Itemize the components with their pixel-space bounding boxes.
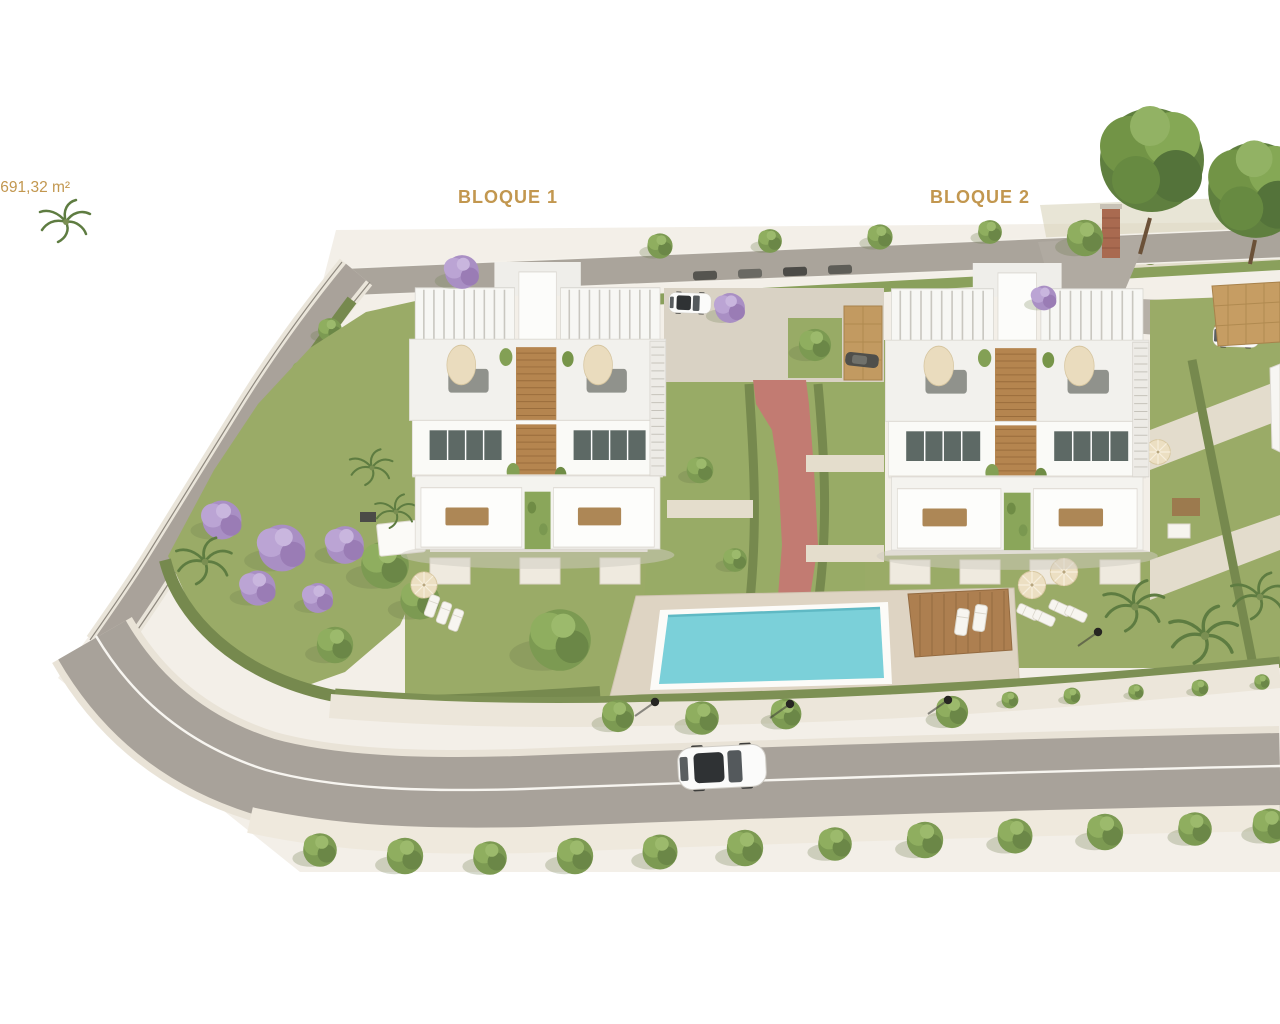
pool-water: [659, 608, 884, 684]
building-2: [877, 263, 1158, 570]
bloque-2-label: BLOQUE 2: [930, 187, 1030, 207]
area-label: .691,32 m²: [0, 179, 70, 196]
carport-right: [1212, 282, 1280, 349]
entrance-pillar: [1100, 204, 1122, 258]
neighbor-building-corner: [1270, 364, 1280, 452]
building-1: [401, 262, 675, 569]
car-white-road: [677, 742, 767, 793]
aerial-render: .691,32 m² BLOQUE 1 BLOQUE 2: [0, 0, 1280, 1024]
car-white-parked: [669, 291, 712, 315]
bloque-1-label: BLOQUE 1: [458, 187, 558, 207]
site-plan-render: .691,32 m² BLOQUE 1 BLOQUE 2: [0, 0, 1280, 1024]
carport-central: [844, 306, 882, 380]
